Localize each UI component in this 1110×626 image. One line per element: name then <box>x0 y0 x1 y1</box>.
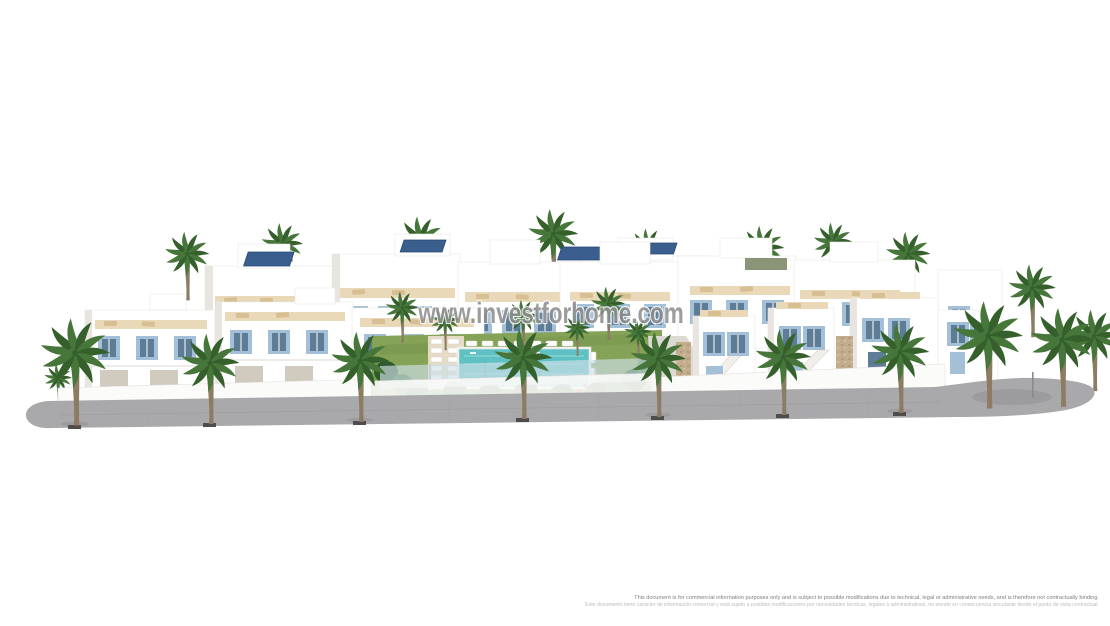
roof-pergola <box>295 288 335 304</box>
watermark: www.investforhome.com <box>416 297 686 331</box>
disclaimer-spanish: Este documento tiene carácter de informa… <box>585 602 1099 610</box>
disclaimer-english: This document is for commercial informat… <box>585 594 1099 602</box>
tree-shadow <box>972 389 1052 405</box>
roof-pergola <box>150 294 186 310</box>
penthouse <box>490 240 540 264</box>
render-page: www.investforhome.com This document is f… <box>0 0 1110 626</box>
legal-disclaimer: This document is for commercial informat… <box>585 594 1099 610</box>
pergola-canopy <box>745 258 787 270</box>
lamp-post <box>1032 372 1034 398</box>
